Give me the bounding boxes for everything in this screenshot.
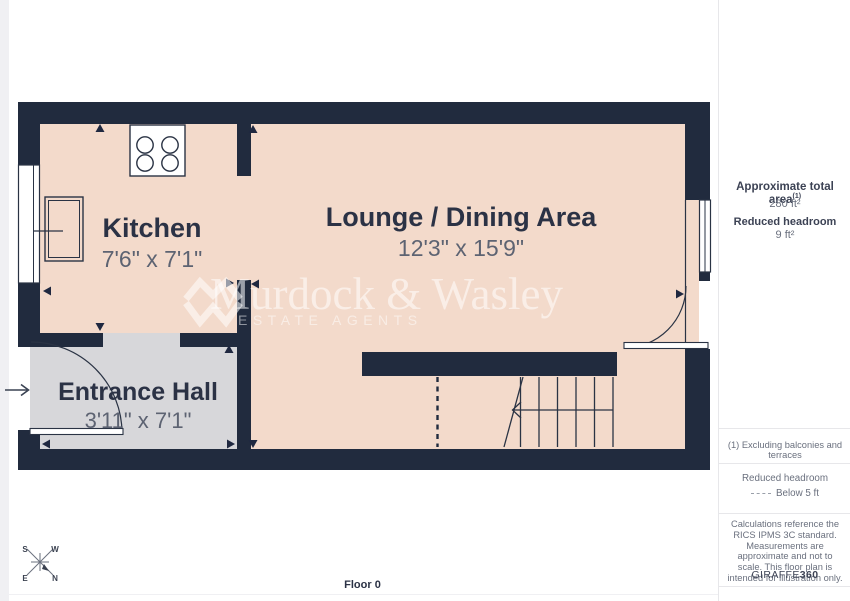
room-dim-entrance-hall: 3'11" x 7'1"	[38, 408, 238, 434]
info-sidebar: Approximate total area(1) 280 ft² Reduce…	[718, 0, 850, 601]
dimension-arrow	[96, 124, 105, 132]
room-label-kitchen: Kitchen	[62, 213, 242, 244]
compass-n: N	[52, 574, 58, 583]
dimension-arrow	[42, 440, 50, 449]
dimension-arrow	[96, 323, 105, 331]
window-left	[19, 165, 40, 283]
legend-item: Below 5 ft	[776, 488, 819, 499]
compass-w: W	[51, 545, 59, 554]
dimension-arrow	[676, 290, 684, 299]
watermark-tagline: ESTATE AGENTS	[238, 312, 423, 328]
dimension-arrow	[43, 287, 51, 296]
brand-suffix: 360	[800, 569, 819, 581]
brand-name: GIRAFFE	[751, 569, 799, 581]
hob-fixture	[130, 125, 185, 176]
window-right	[700, 200, 711, 272]
dimension-arrow	[227, 440, 235, 449]
dashed-line-icon	[751, 493, 771, 494]
entrance-arrow-icon	[5, 385, 29, 396]
divider	[719, 513, 850, 514]
compass-icon: S W E N	[22, 545, 59, 583]
room-label-entrance-hall: Entrance Hall	[38, 378, 238, 407]
total-area-value: 280 ft²	[719, 198, 850, 210]
dimension-arrow	[225, 345, 234, 353]
room-label-lounge: Lounge / Dining Area	[281, 202, 641, 233]
reduced-headroom-value: 9 ft²	[719, 229, 850, 241]
divider	[719, 463, 850, 464]
dimension-arrow	[249, 440, 258, 448]
compass-e: E	[22, 574, 28, 583]
dimension-arrow	[249, 125, 258, 133]
legend-row: Below 5 ft	[719, 488, 850, 499]
room-dim-lounge: 12'3" x 15'9"	[281, 235, 641, 262]
reduced-headroom-label: Reduced headroom	[719, 216, 850, 228]
brand-logo: GIRAFFE360	[719, 569, 850, 581]
divider	[719, 586, 850, 587]
divider	[719, 428, 850, 429]
floor-label: Floor 0	[300, 579, 425, 591]
lounge-door	[624, 286, 708, 349]
room-dim-kitchen: 7'6" x 7'1"	[62, 246, 242, 273]
compass-s: S	[22, 545, 28, 554]
staircase	[504, 377, 613, 447]
footnote-text: (1) Excluding balconies and terraces	[719, 440, 850, 460]
legend-title: Reduced headroom	[719, 473, 850, 484]
floor-plan-viewer: S W E N Murdock & Wasley ESTATE AGENTS K…	[0, 0, 850, 601]
